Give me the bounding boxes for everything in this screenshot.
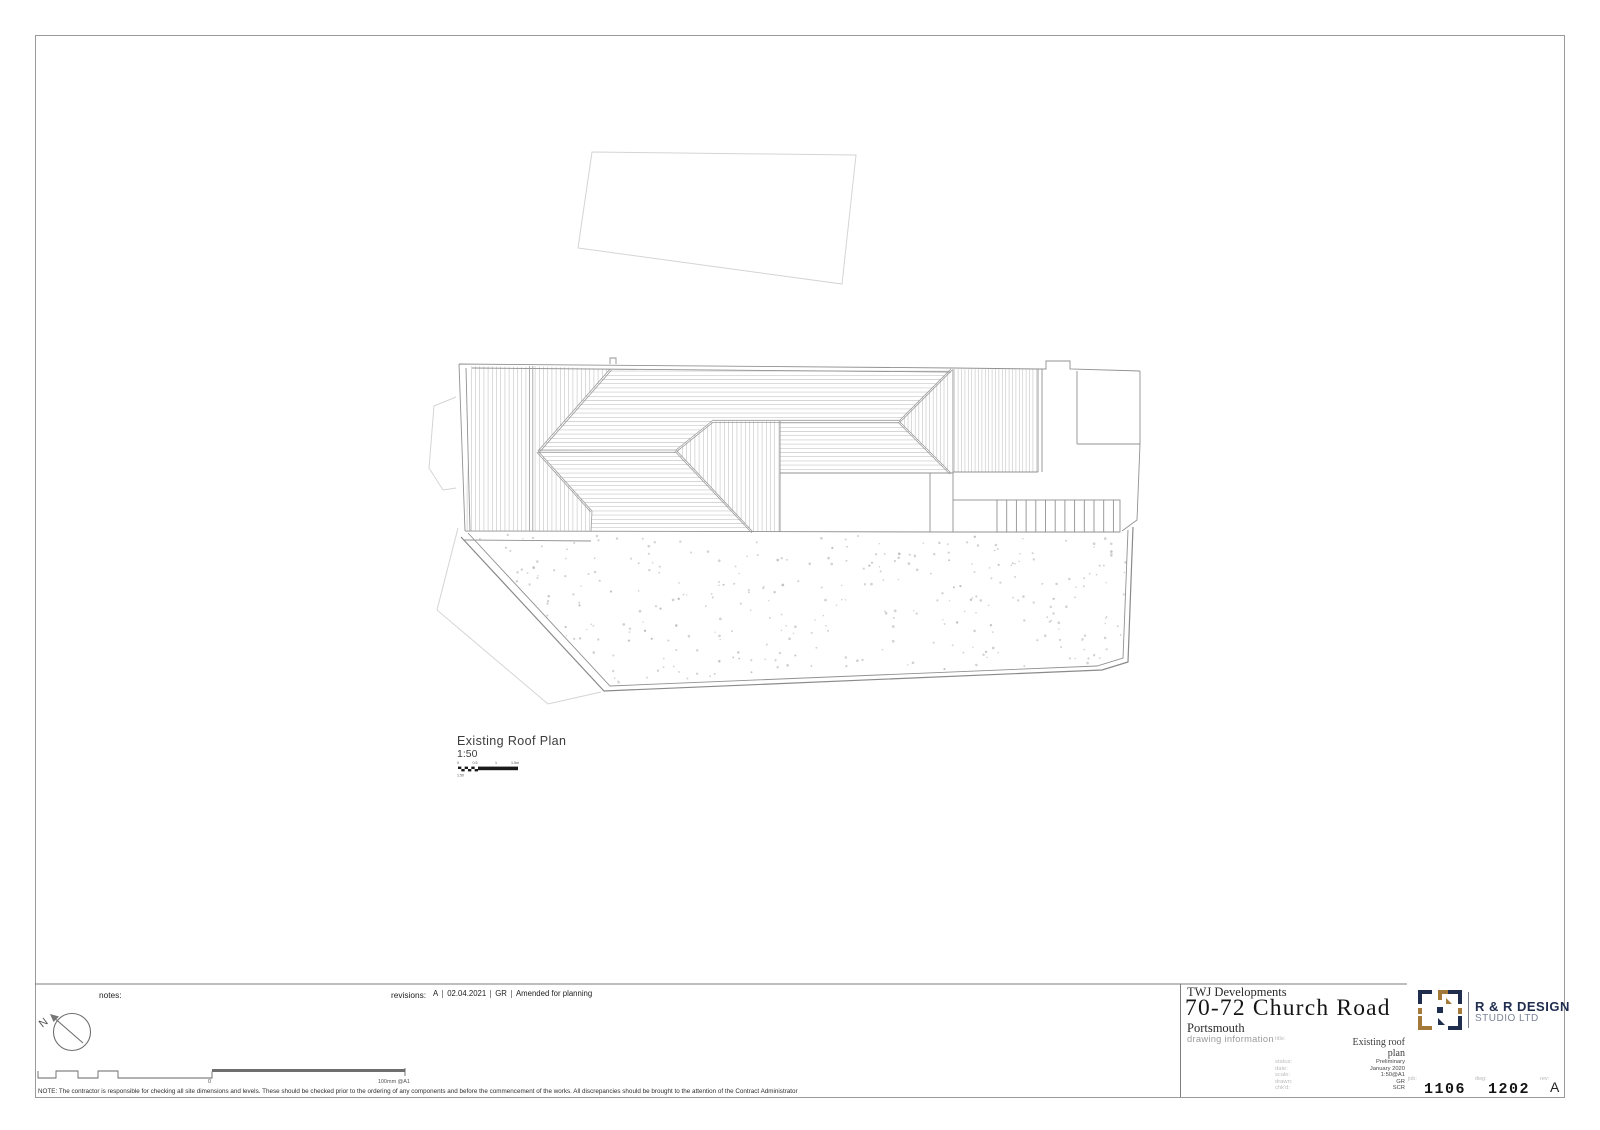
project-location: Portsmouth <box>1187 1022 1245 1035</box>
rr-design-logo-icon <box>1418 990 1462 1030</box>
revision-description: Amended for planning <box>516 990 592 998</box>
field-row-scale: scale: 1:50@A1 <box>1275 1073 1405 1079</box>
neighbour-building-outline <box>578 152 856 284</box>
rev-letter: A <box>1550 1080 1559 1094</box>
scalebar-caption: 1:50 <box>457 774 464 778</box>
sheet-border <box>36 36 1565 1098</box>
context-outlines <box>429 152 856 704</box>
scalebar-tick: 0.5 <box>473 761 478 765</box>
divider <box>511 990 512 998</box>
field-label: title: <box>1275 1037 1286 1043</box>
field-row-title: title: Existing roof plan <box>1275 1037 1405 1059</box>
north-arrow-circle <box>54 1014 91 1051</box>
rear-steps-outline <box>953 500 1120 532</box>
calibration-caption: 100mm @A1 <box>366 1080 410 1086</box>
field-value: Preliminary <box>1376 1060 1405 1066</box>
garden-boundary-inner <box>468 530 1128 686</box>
field-label: chk'd: <box>1275 1086 1290 1092</box>
field-row-status: status: Preliminary <box>1275 1060 1405 1066</box>
field-value: Existing roof plan <box>1333 1037 1405 1059</box>
revision-author: GR <box>495 990 507 998</box>
divider <box>490 990 491 998</box>
drawing-information-label: drawing information <box>1187 1035 1274 1044</box>
project-title: 70-72 Church Road <box>1185 997 1391 1021</box>
plan-title: Existing Roof Plan <box>457 735 566 748</box>
job-number: 1106 <box>1424 1082 1466 1097</box>
scalebar-tick: 1 <box>495 761 497 765</box>
north-arrow <box>50 1014 91 1051</box>
rev-label: rev: <box>1540 1077 1549 1083</box>
logo-line2: STUDIO LTD <box>1475 1014 1539 1024</box>
plan-scale-label: 1:50 <box>457 749 477 760</box>
field-row-checked: chk'd: SCR <box>1275 1086 1405 1092</box>
scalebar-tick: 0 <box>457 761 459 765</box>
field-label: status: <box>1275 1060 1292 1066</box>
dwg-number: 1202 <box>1488 1082 1530 1097</box>
revision-entry: A 02.04.2021 GR Amended for planning <box>433 990 592 998</box>
plan-linework: 0 0.5 1 1.5m 1:50 <box>0 0 1600 1130</box>
rear-steps-treads <box>997 500 1113 532</box>
bay-outline <box>429 397 456 490</box>
contract-footnote: NOTE: The contractor is responsible for … <box>38 1089 798 1095</box>
logo-divider <box>1468 992 1469 1028</box>
garden-boundary-outer <box>461 527 1133 691</box>
dwg-label: dwg: <box>1475 1077 1487 1083</box>
scalebar-tick: 1.5m <box>511 761 519 765</box>
site-boundary-outline <box>437 528 601 704</box>
field-value: SCR <box>1393 1086 1405 1092</box>
divider <box>442 990 443 998</box>
drawing-sheet: 0 0.5 1 1.5m 1:50 Existing Roof Plan 1:5… <box>0 0 1600 1130</box>
field-label: scale: <box>1275 1073 1290 1079</box>
field-row-drawn: drawn: GR <box>1275 1080 1405 1086</box>
calibration-zero: 0 <box>208 1080 211 1086</box>
field-value: 1:50@A1 <box>1381 1073 1405 1079</box>
job-label: job: <box>1408 1077 1417 1083</box>
revisions-label: revisions: <box>391 991 426 999</box>
scale-bar: 0 0.5 1 1.5m 1:50 <box>457 761 519 778</box>
notes-label: notes: <box>99 991 122 999</box>
calibration-bar <box>38 1068 405 1078</box>
roof-hatching <box>467 366 1036 532</box>
revision-date: 02.04.2021 <box>447 990 486 998</box>
logo-line1: R & R DESIGN <box>1475 1000 1570 1013</box>
revision-letter: A <box>433 990 438 998</box>
